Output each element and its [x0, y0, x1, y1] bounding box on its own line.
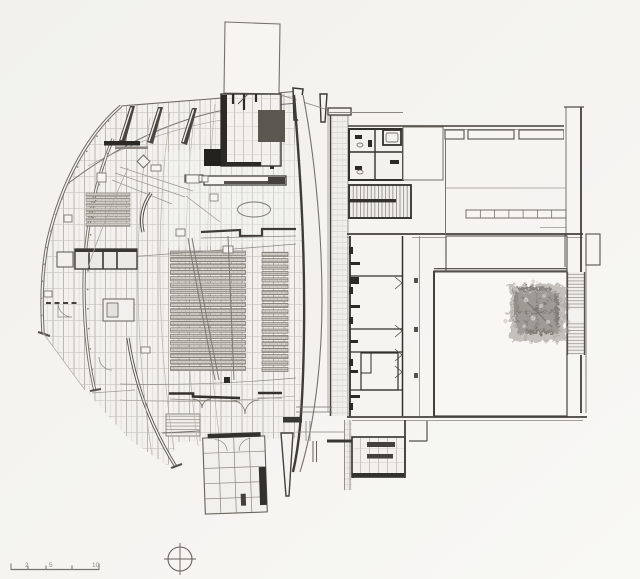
svg-text:10: 10	[92, 562, 100, 569]
svg-text:5: 5	[49, 562, 53, 569]
svg-text:2: 2	[25, 562, 29, 569]
